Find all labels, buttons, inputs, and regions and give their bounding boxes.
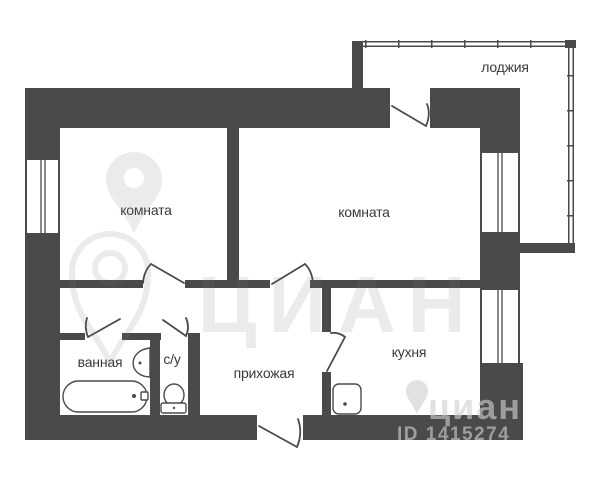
wall-left-lower (25, 233, 60, 440)
wall-top-left (25, 88, 390, 128)
wall-room-partition (227, 128, 239, 280)
label-hallway: прихожая (234, 365, 295, 381)
wall-right-2 (480, 232, 520, 290)
wall-left-upper (25, 88, 60, 160)
label-room2: комната (338, 204, 390, 220)
watermark-brand-small-text: циан (428, 386, 522, 427)
door-entrance (259, 419, 300, 447)
watermark-brand-text: ЦИАН (198, 260, 477, 349)
wall-bath-top-a (60, 333, 85, 340)
floorplan-svg: комната комната лоджия ванная с/у прихож… (0, 0, 600, 480)
watermark-corner: циан ID 1415274 (397, 380, 522, 445)
cian-pin-outline-icon (72, 234, 148, 362)
door-wc (163, 318, 188, 336)
wall-right-1 (480, 128, 520, 153)
watermark-listing-id: ID 1415274 (397, 424, 510, 445)
sink-icon (133, 348, 150, 377)
floorplan-image: комната комната лоджия ванная с/у прихож… (0, 0, 600, 480)
walls (25, 40, 576, 440)
label-loggia: лоджия (481, 59, 529, 75)
wall-loggia-bottom (520, 243, 575, 253)
window-room1-left (25, 160, 60, 233)
label-wc: с/у (163, 351, 180, 367)
window-room2-loggia (480, 153, 520, 232)
door-loggia (392, 104, 429, 126)
stove-icon (333, 384, 361, 414)
wall-top-right (430, 88, 520, 128)
bathtub-icon (63, 381, 148, 412)
cian-pin-icon (106, 152, 162, 233)
wall-kitchen-lower (322, 372, 331, 415)
wall-bath-wc-divider (150, 340, 160, 415)
wall-loggia-stub (352, 41, 363, 88)
window-kitchen (480, 290, 520, 363)
toilet-icon (161, 384, 186, 413)
cian-pin-small-icon (406, 380, 428, 414)
wall-bottom-left (25, 415, 257, 440)
watermark-center: ЦИАН (72, 152, 477, 362)
